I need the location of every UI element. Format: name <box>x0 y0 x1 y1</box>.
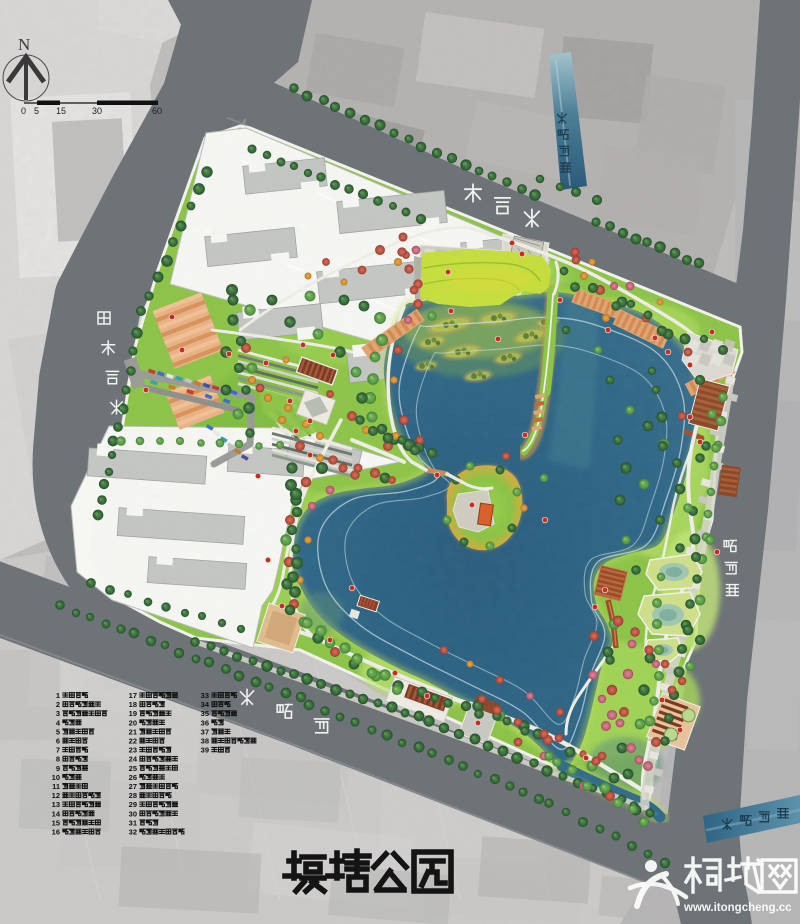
svg-text:21: 21 <box>129 727 137 736</box>
svg-text:34: 34 <box>201 700 210 709</box>
svg-text:60: 60 <box>152 106 162 116</box>
svg-text:39: 39 <box>201 746 209 755</box>
svg-text:27: 27 <box>129 782 137 791</box>
svg-text:26: 26 <box>129 773 137 782</box>
svg-text:15: 15 <box>56 106 66 116</box>
svg-text:8: 8 <box>56 755 60 764</box>
svg-text:7: 7 <box>56 746 60 755</box>
svg-text:3: 3 <box>56 709 60 718</box>
svg-text:11: 11 <box>52 782 60 791</box>
svg-text:33: 33 <box>201 691 209 700</box>
svg-text:37: 37 <box>201 727 209 736</box>
svg-text:N: N <box>18 35 30 54</box>
svg-text:1: 1 <box>56 691 60 700</box>
svg-text:17: 17 <box>129 691 137 700</box>
svg-text:16: 16 <box>52 828 60 837</box>
svg-text:10: 10 <box>52 773 60 782</box>
svg-text:31: 31 <box>129 818 137 827</box>
svg-text:38: 38 <box>201 737 209 746</box>
svg-text:6: 6 <box>56 737 60 746</box>
svg-text:www.itongcheng.cc: www.itongcheng.cc <box>683 902 792 914</box>
svg-text:2: 2 <box>56 700 60 709</box>
svg-text:36: 36 <box>201 718 209 727</box>
svg-text:24: 24 <box>129 755 138 764</box>
svg-text:12: 12 <box>52 791 60 800</box>
svg-text:25: 25 <box>129 764 137 773</box>
svg-text:9: 9 <box>56 764 60 773</box>
svg-text:5: 5 <box>56 727 60 736</box>
svg-text:14: 14 <box>52 809 61 818</box>
svg-text:35: 35 <box>201 709 209 718</box>
svg-text:29: 29 <box>129 800 137 809</box>
svg-text:13: 13 <box>52 800 60 809</box>
svg-text:28: 28 <box>129 791 137 800</box>
svg-text:22: 22 <box>129 737 137 746</box>
svg-text:23: 23 <box>129 746 137 755</box>
svg-text:15: 15 <box>52 818 60 827</box>
svg-text:30: 30 <box>92 106 102 116</box>
svg-text:32: 32 <box>129 828 137 837</box>
svg-text:18: 18 <box>129 700 137 709</box>
svg-text:5: 5 <box>34 106 39 116</box>
svg-text:20: 20 <box>129 718 137 727</box>
svg-text:30: 30 <box>129 809 137 818</box>
svg-text:19: 19 <box>129 709 137 718</box>
svg-text:0: 0 <box>21 106 26 116</box>
